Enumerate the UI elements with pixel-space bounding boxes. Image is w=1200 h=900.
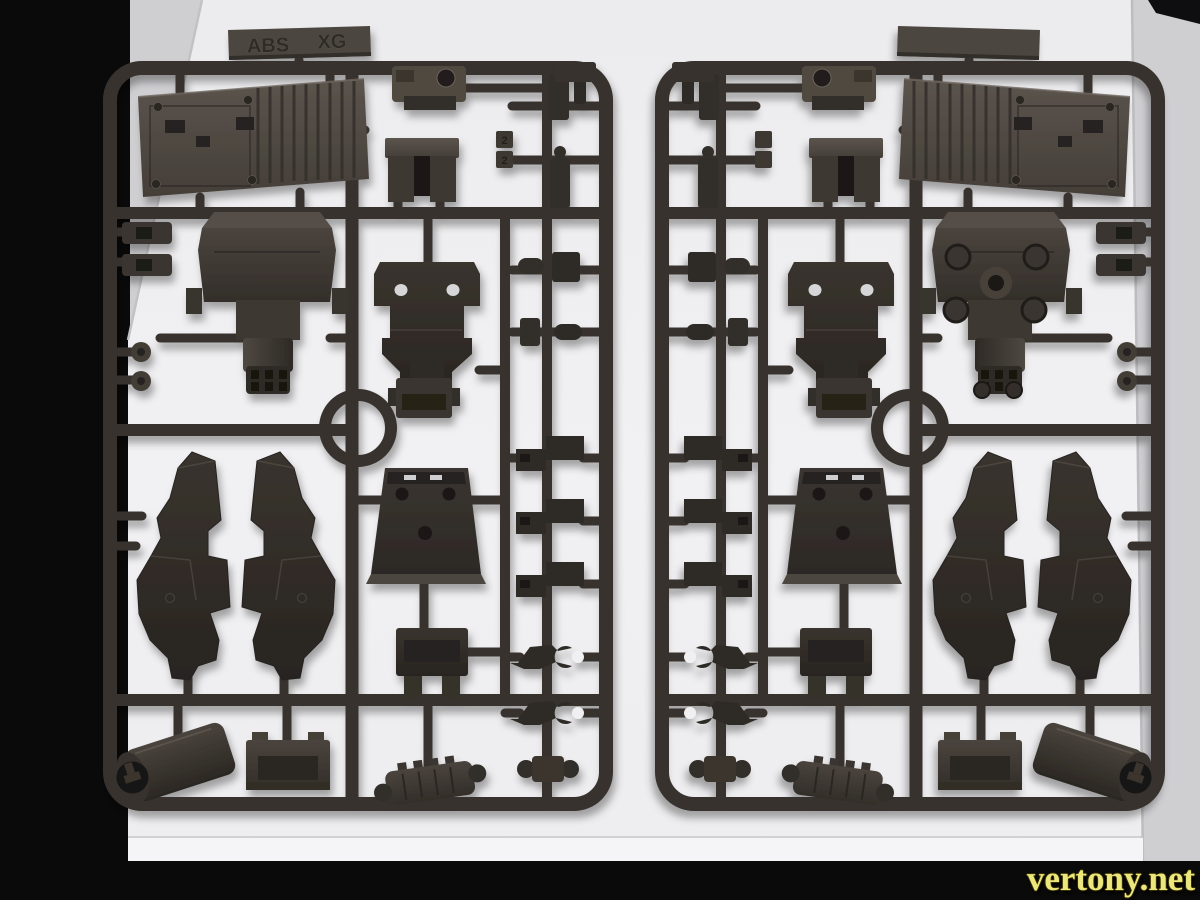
material-marking: ABS [247,34,290,57]
sprue-photo-illustration: ABS XG 2 2 [0,0,1200,900]
runner-code-marking: XG [317,31,347,54]
foreground-black-band [0,861,1200,900]
photo-model-kit-sprues: ABS XG 2 2 vertony.net [0,0,1200,900]
board-edge [128,838,1143,862]
part-number-tag-text: 2 [501,135,507,147]
part-number-tag-text: 2 [501,155,507,167]
watermark: vertony.net [1027,861,1195,896]
